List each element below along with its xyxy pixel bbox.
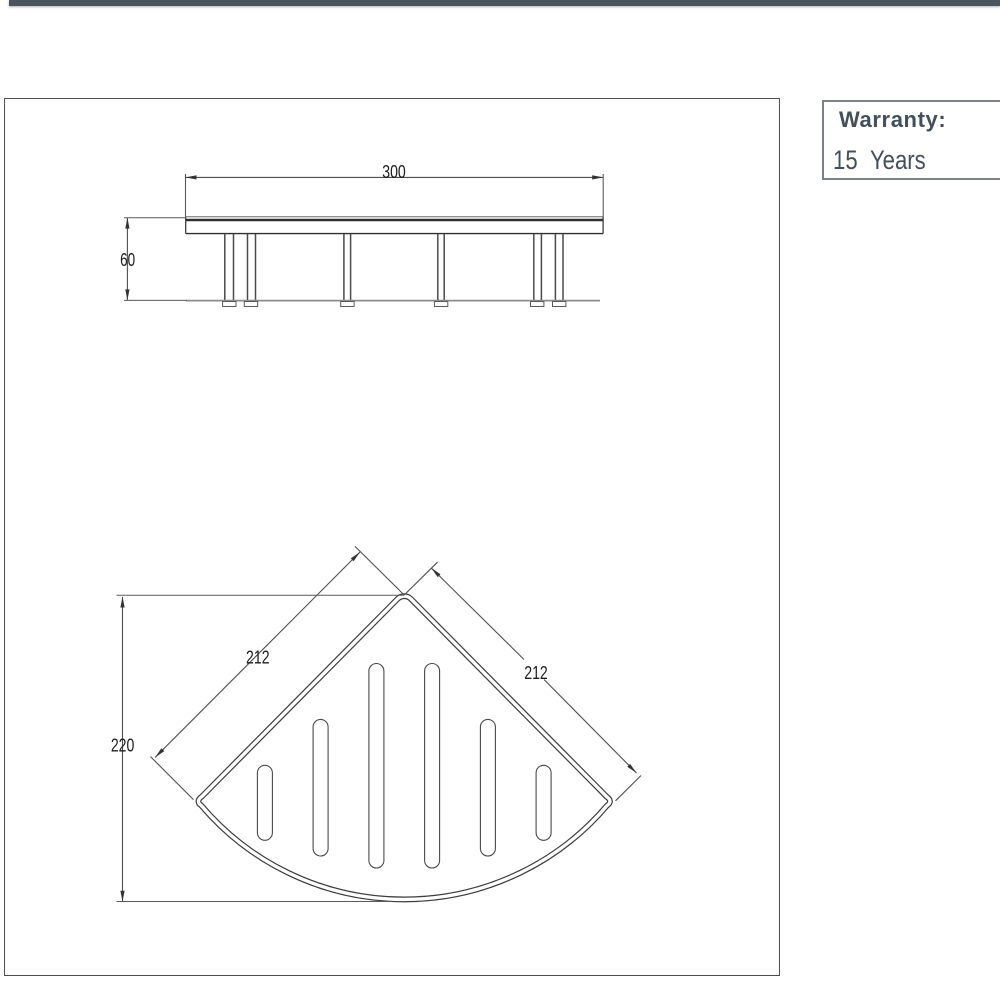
svg-text:60: 60 (120, 249, 135, 270)
svg-text:212: 212 (246, 646, 270, 667)
svg-text:300: 300 (382, 161, 406, 182)
svg-text:220: 220 (111, 735, 135, 756)
svg-text:212: 212 (524, 662, 548, 683)
